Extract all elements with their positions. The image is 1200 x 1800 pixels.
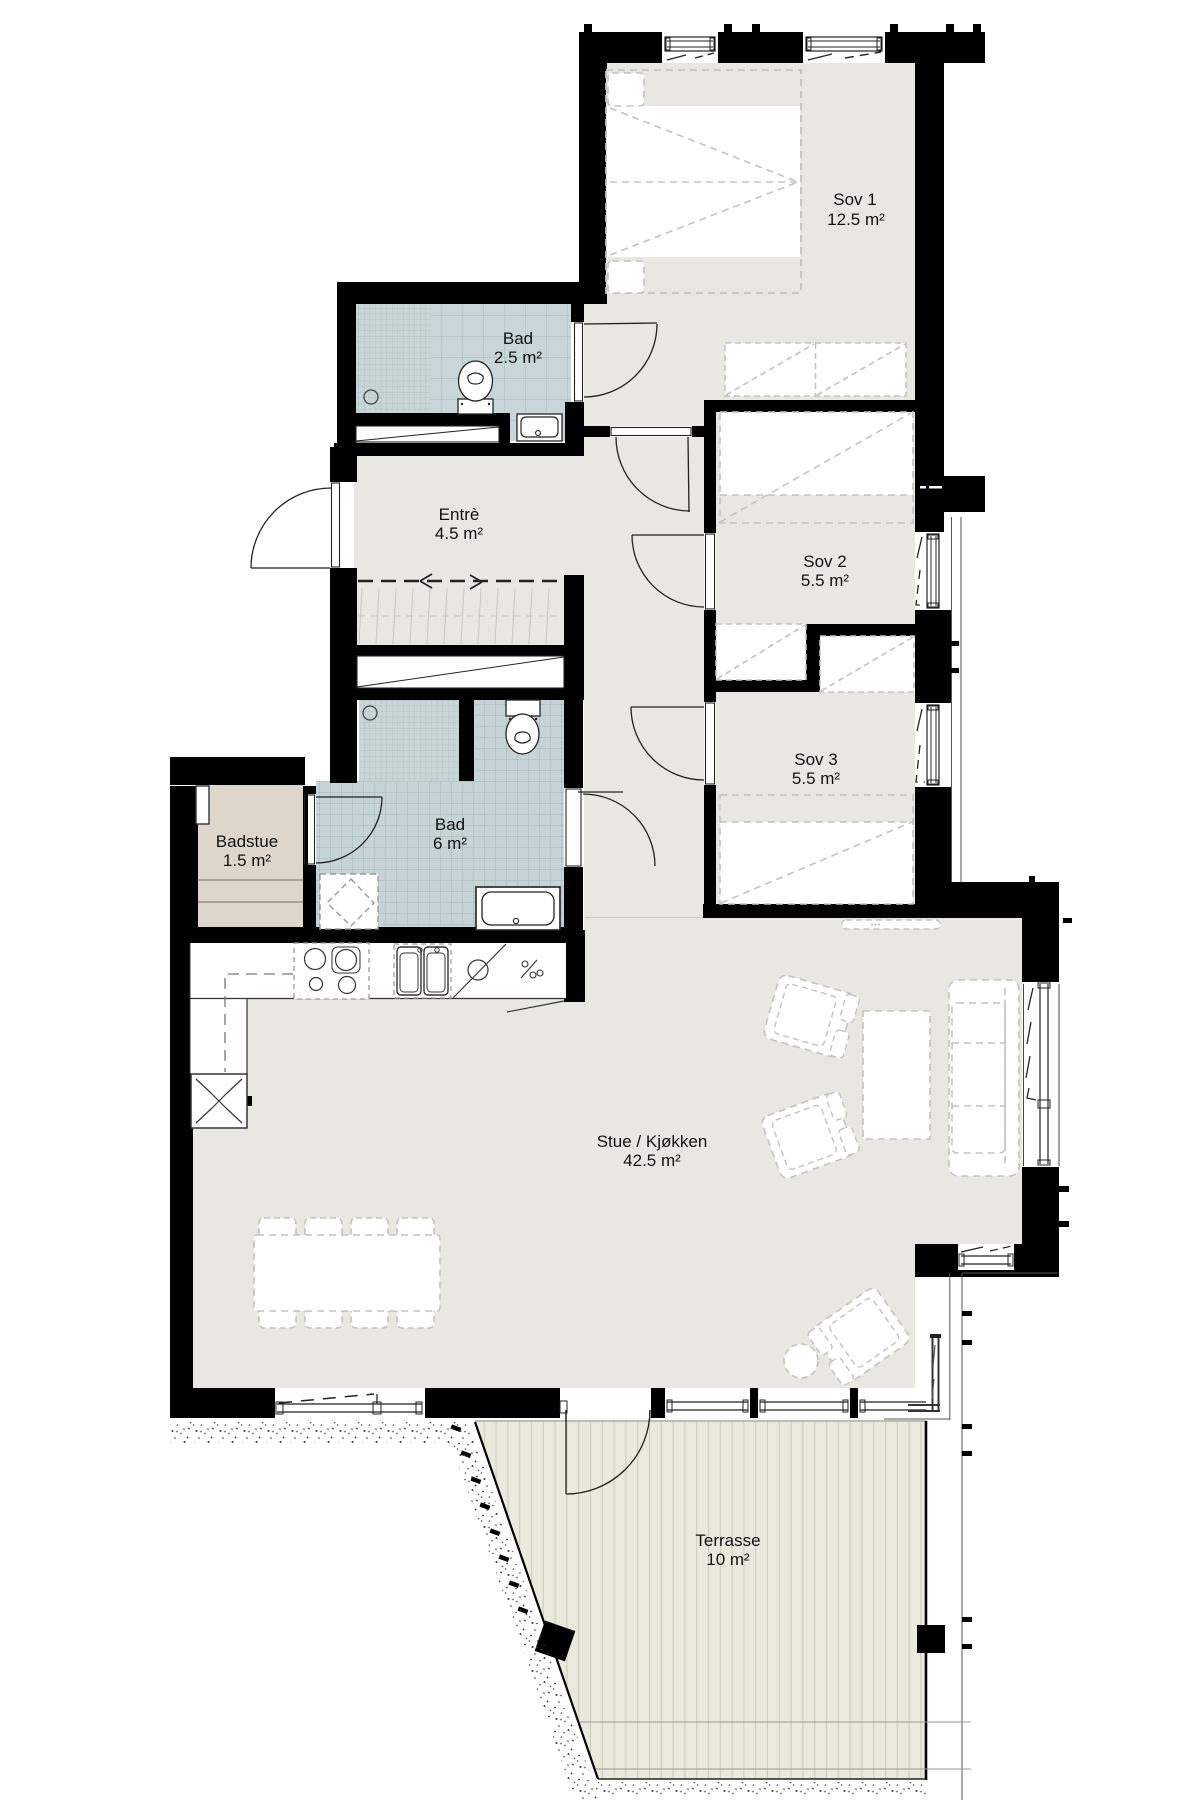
svg-text:2.5 m²: 2.5 m² [494,348,543,367]
svg-text:Badstue: Badstue [216,832,278,851]
svg-text:42.5 m²: 42.5 m² [623,1151,681,1170]
svg-text:Sov 1: Sov 1 [833,190,876,209]
svg-text:Stue / Kjøkken: Stue / Kjøkken [597,1132,708,1151]
svg-text:Bad: Bad [503,329,533,348]
svg-text:Bad: Bad [435,815,465,834]
svg-text:Sov 2: Sov 2 [803,552,846,571]
svg-text:12.5 m²: 12.5 m² [827,210,885,229]
svg-text:Sov 3: Sov 3 [794,750,837,769]
svg-text:1.5 m²: 1.5 m² [223,851,272,870]
svg-text:10 m²: 10 m² [706,1550,750,1569]
svg-text:5.5 m²: 5.5 m² [801,571,850,590]
svg-text:4.5 m²: 4.5 m² [435,524,484,543]
svg-text:5.5 m²: 5.5 m² [792,769,841,788]
svg-text:6 m²: 6 m² [433,834,467,853]
svg-text:Terrasse: Terrasse [695,1531,760,1550]
svg-text:Entrè: Entrè [439,505,480,524]
